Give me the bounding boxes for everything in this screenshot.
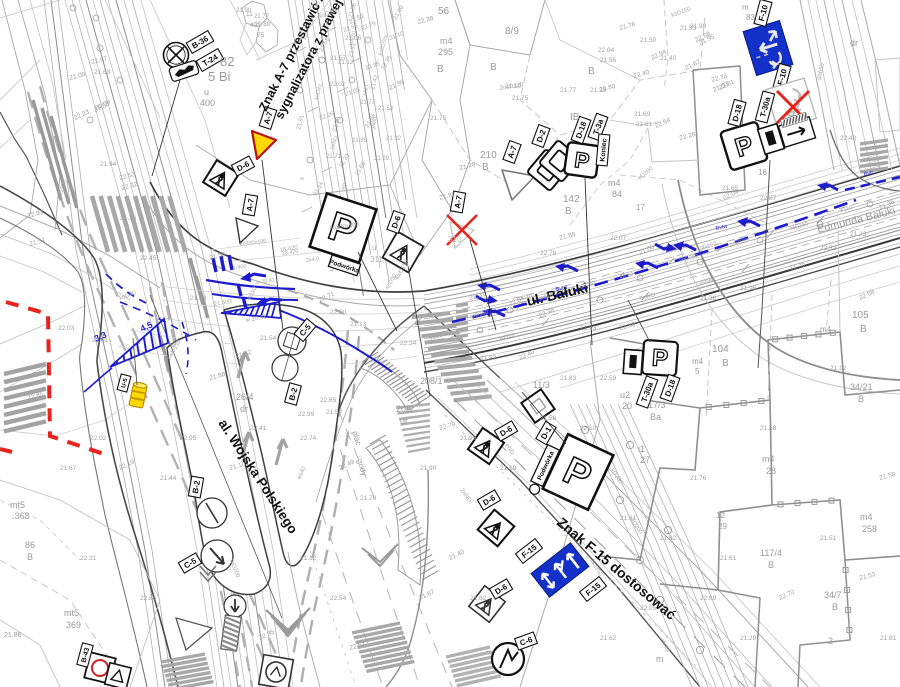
svg-text:22.45: 22.45 — [140, 255, 157, 262]
svg-text:12: 12 — [716, 511, 725, 520]
svg-text:21.96: 21.96 — [740, 285, 757, 292]
svg-text:21.58: 21.58 — [760, 425, 777, 432]
svg-text:21.87: 21.87 — [480, 355, 497, 362]
svg-text:21.55: 21.55 — [600, 57, 617, 64]
svg-text:22.65: 22.65 — [320, 397, 337, 404]
svg-text:5 Bi: 5 Bi — [208, 69, 231, 84]
svg-text:B: B — [860, 324, 867, 335]
svg-text:11/3: 11/3 — [533, 380, 550, 390]
svg-text:21.12: 21.12 — [300, 555, 317, 562]
svg-text:21.62: 21.62 — [470, 595, 487, 602]
svg-text:22.04: 22.04 — [598, 47, 615, 54]
svg-text:21.57: 21.57 — [326, 409, 343, 416]
svg-text:22.59: 22.59 — [600, 375, 617, 382]
svg-text:104: 104 — [712, 344, 729, 355]
svg-text:5: 5 — [695, 367, 700, 376]
svg-text:21.61: 21.61 — [720, 555, 737, 562]
svg-text:22.95: 22.95 — [180, 435, 197, 442]
svg-text:21.77: 21.77 — [560, 87, 577, 94]
svg-text:21.75: 21.75 — [512, 95, 529, 102]
svg-text:117/4: 117/4 — [760, 548, 782, 558]
svg-text:B: B — [565, 206, 572, 217]
svg-text:dr: dr — [400, 416, 408, 426]
svg-text:11: 11 — [246, 11, 253, 18]
svg-text:22.41: 22.41 — [250, 425, 267, 432]
svg-text:21.63: 21.63 — [94, 69, 111, 76]
svg-text:21.81: 21.81 — [880, 635, 897, 642]
svg-text:21.58: 21.58 — [540, 415, 557, 422]
svg-text:75: 75 — [257, 32, 265, 39]
svg-text:21.44: 21.44 — [160, 475, 177, 482]
svg-text:86: 86 — [25, 540, 35, 550]
svg-text:21.54: 21.54 — [260, 335, 277, 342]
svg-text:B: B — [27, 552, 33, 562]
svg-text:208/: 208/ — [396, 404, 414, 414]
svg-text:22.05: 22.05 — [640, 605, 657, 612]
svg-text:m4: m4 — [440, 36, 453, 46]
svg-text:mt5: mt5 — [64, 608, 79, 618]
svg-text:P: P — [651, 344, 669, 372]
svg-text:310: 310 — [448, 235, 462, 244]
svg-text:21.23: 21.23 — [850, 231, 867, 238]
svg-text:22.74: 22.74 — [300, 435, 317, 442]
svg-text:26/4: 26/4 — [236, 392, 254, 402]
svg-text:21.92: 21.92 — [660, 535, 677, 542]
svg-text:21.36: 21.36 — [120, 215, 137, 222]
svg-text:m: m — [656, 654, 664, 664]
svg-text:.368: .368 — [12, 511, 30, 521]
svg-text:21.61: 21.61 — [636, 121, 653, 128]
svg-text:21.77: 21.77 — [254, 14, 270, 20]
svg-text:83: 83 — [746, 13, 755, 22]
svg-text:21.71: 21.71 — [326, 154, 342, 160]
svg-text:21.67: 21.67 — [60, 465, 77, 472]
svg-text:27: 27 — [640, 455, 650, 465]
svg-text:B: B — [832, 602, 838, 612]
svg-text:56: 56 — [438, 6, 450, 17]
svg-text:w: w — [299, 176, 304, 182]
svg-text:21.76: 21.76 — [690, 475, 707, 482]
svg-text:21.12: 21.12 — [830, 365, 847, 372]
svg-text:369: 369 — [66, 620, 81, 630]
svg-text:21.39: 21.39 — [590, 87, 607, 94]
svg-text:22.31: 22.31 — [80, 555, 97, 562]
svg-text:82: 82 — [220, 54, 234, 69]
svg-text:21.09: 21.09 — [374, 156, 390, 162]
svg-text:22.99: 22.99 — [298, 411, 315, 418]
svg-text:B: B — [490, 62, 497, 73]
svg-text:21.93: 21.93 — [580, 325, 597, 332]
svg-text:21.98: 21.98 — [690, 23, 707, 30]
svg-text:Ba: Ba — [650, 412, 661, 422]
svg-text:21.85: 21.85 — [352, 138, 368, 144]
svg-text:B: B — [588, 66, 595, 77]
svg-text:21.94: 21.94 — [100, 161, 117, 168]
svg-text:16: 16 — [758, 168, 767, 177]
svg-text:21.77: 21.77 — [360, 100, 376, 106]
svg-text:B: B — [768, 560, 774, 570]
svg-text:22.32: 22.32 — [820, 245, 837, 252]
svg-text:22.34: 22.34 — [400, 340, 417, 347]
svg-text:B: B — [722, 358, 729, 369]
svg-text:22.87: 22.87 — [760, 195, 777, 202]
svg-text:21.62: 21.62 — [600, 635, 617, 642]
svg-text:dr: dr — [850, 38, 858, 48]
svg-text:21.29: 21.29 — [740, 635, 757, 642]
svg-text:B: B — [858, 394, 864, 404]
svg-text:mt5: mt5 — [10, 500, 25, 510]
svg-text:21.53: 21.53 — [378, 106, 394, 112]
svg-text:dr: dr — [240, 404, 248, 414]
svg-text:21.32: 21.32 — [386, 136, 402, 142]
svg-text:m4: m4 — [608, 178, 621, 188]
svg-text:m4: m4 — [860, 512, 873, 522]
svg-text:21.19: 21.19 — [500, 465, 517, 472]
svg-text:208/1: 208/1 — [420, 376, 443, 386]
svg-text:105: 105 — [852, 310, 869, 321]
svg-text:34/7: 34/7 — [824, 590, 842, 600]
svg-text:22.02: 22.02 — [90, 435, 107, 442]
svg-text:21.06: 21.06 — [345, 35, 362, 42]
svg-text:22.60: 22.60 — [330, 309, 347, 316]
svg-text:401: 401 — [250, 22, 261, 29]
svg-text:17/3: 17/3 — [648, 400, 666, 410]
svg-text:210: 210 — [480, 150, 497, 161]
svg-text:17: 17 — [636, 203, 645, 212]
svg-text:m4: m4 — [762, 454, 775, 464]
svg-text:m4: m4 — [820, 325, 832, 334]
svg-text:34/21: 34/21 — [850, 382, 873, 392]
svg-text:2: 2 — [828, 636, 833, 646]
svg-text:258: 258 — [862, 524, 877, 534]
svg-text:22.69: 22.69 — [700, 595, 717, 602]
svg-text:B: B — [482, 162, 489, 173]
svg-text:21.13: 21.13 — [350, 321, 367, 328]
svg-text:m: m — [742, 3, 749, 12]
svg-text:21.01: 21.01 — [92, 337, 109, 344]
svg-text:21.18: 21.18 — [190, 295, 207, 302]
svg-text:i1: i1 — [638, 444, 645, 454]
svg-text:84: 84 — [612, 189, 622, 199]
svg-text:21.69: 21.69 — [634, 111, 651, 118]
svg-text:21.57: 21.57 — [330, 55, 347, 62]
svg-text:u: u — [204, 87, 209, 97]
svg-text:21.36: 21.36 — [700, 295, 717, 302]
svg-text:m4: m4 — [692, 357, 704, 366]
svg-text:29: 29 — [718, 522, 727, 531]
svg-text:21.83: 21.83 — [560, 375, 577, 382]
svg-text:21.75: 21.75 — [430, 115, 447, 122]
svg-text:21.51: 21.51 — [820, 535, 837, 542]
svg-text:22.42: 22.42 — [840, 135, 857, 142]
svg-text:22.10: 22.10 — [580, 425, 597, 432]
svg-text:22.07: 22.07 — [610, 235, 627, 242]
svg-text:21.99: 21.99 — [460, 435, 477, 442]
svg-text:22.03: 22.03 — [58, 325, 75, 332]
svg-text:311: 311 — [370, 255, 383, 264]
svg-text:u2: u2 — [620, 390, 630, 400]
svg-text:22.02: 22.02 — [330, 82, 346, 88]
svg-text:u: u — [372, 243, 376, 252]
svg-text:295: 295 — [438, 47, 453, 57]
svg-text:400: 400 — [200, 98, 215, 108]
svg-text:21.86: 21.86 — [4, 632, 22, 639]
svg-text:8/9: 8/9 — [505, 26, 519, 37]
svg-text:22.78: 22.78 — [540, 250, 557, 257]
svg-text:21.50: 21.50 — [640, 37, 657, 44]
svg-text:20: 20 — [622, 401, 632, 411]
svg-text:22.86: 22.86 — [140, 595, 157, 602]
svg-text:142: 142 — [563, 194, 580, 205]
svg-text:B: B — [437, 64, 444, 75]
svg-text:IB: IB — [570, 112, 580, 123]
svg-text:22.54: 22.54 — [330, 595, 347, 602]
svg-text:21.90: 21.90 — [420, 465, 437, 472]
svg-text:21.78: 21.78 — [360, 495, 377, 502]
svg-text:28: 28 — [766, 466, 776, 476]
